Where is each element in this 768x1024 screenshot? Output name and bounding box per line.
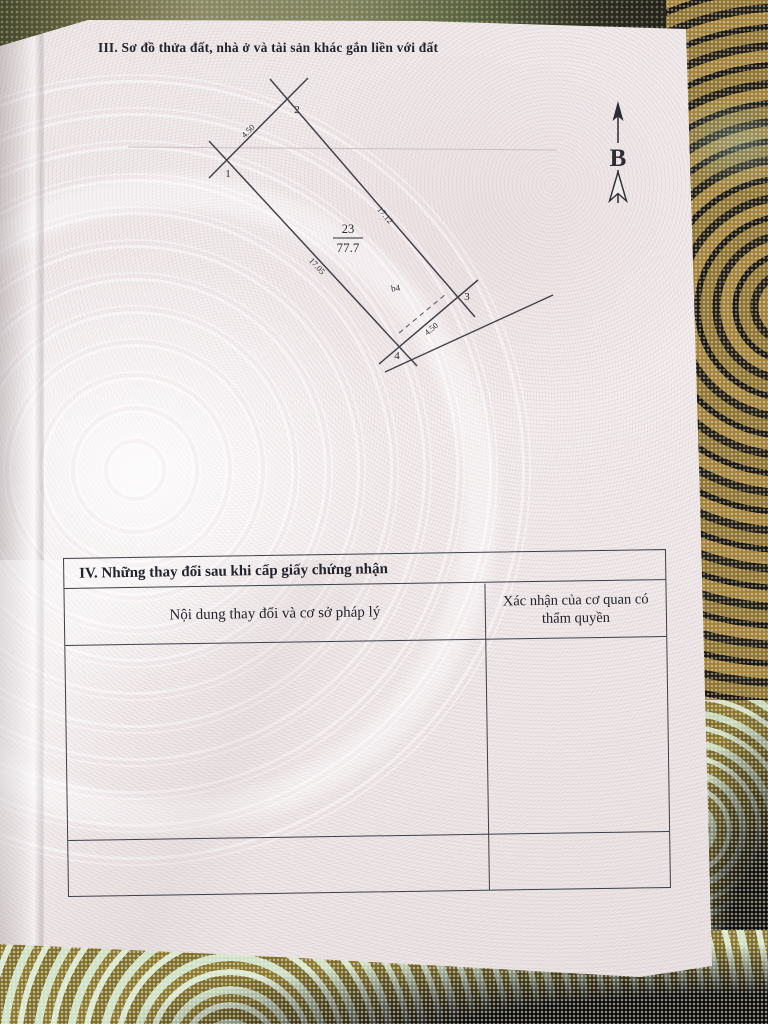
vertex-4-label: 4: [394, 350, 400, 362]
changes-table: IV. Những thay đổi sau khi cấp giấy chứn…: [63, 549, 671, 897]
vertex-2-label: 2: [294, 104, 300, 116]
edge-2-3: [270, 79, 475, 317]
vertex-1-label: 1: [225, 168, 231, 180]
parcel-number: 23: [342, 222, 355, 236]
table-footer-divider: [68, 831, 669, 841]
vertex-3-label: 3: [464, 291, 470, 303]
parcel-area: 77.7: [337, 240, 360, 255]
column-header-confirmation: Xác nhận của cơ quan có thẩm quyền: [485, 580, 666, 639]
north-arrow: B: [610, 101, 627, 203]
parcel-boundary: [209, 78, 553, 372]
edge-1-2: [209, 78, 308, 178]
photo-scene: III. Sơ đồ thửa đất, nhà ở và tài sản kh…: [0, 0, 768, 1024]
certificate-page: III. Sơ đồ thửa đất, nhà ở và tài sản kh…: [0, 0, 768, 1024]
edge-4-1: [209, 141, 417, 366]
edge-left-dimension: 17.05: [307, 256, 327, 277]
adjacent-boundary-line: [385, 295, 553, 372]
edge-right-dimension: 17.12: [375, 205, 395, 226]
column-header-content: Nội dung thay đổi và cơ sở pháp lý: [64, 583, 485, 645]
faint-grid-line: [128, 147, 557, 150]
edge-bottom-dimension: 4.50: [422, 320, 440, 337]
north-label: B: [610, 145, 627, 172]
edge-top-dimension: 4.50: [239, 122, 257, 140]
parcel-number-area: 23 77.7: [333, 222, 363, 255]
parcel-diagram: 1 2 3 4 4.50 17.12 17.05 4.50 23 77.7 b4: [0, 0, 768, 560]
annotation-b4: b4: [390, 282, 401, 293]
